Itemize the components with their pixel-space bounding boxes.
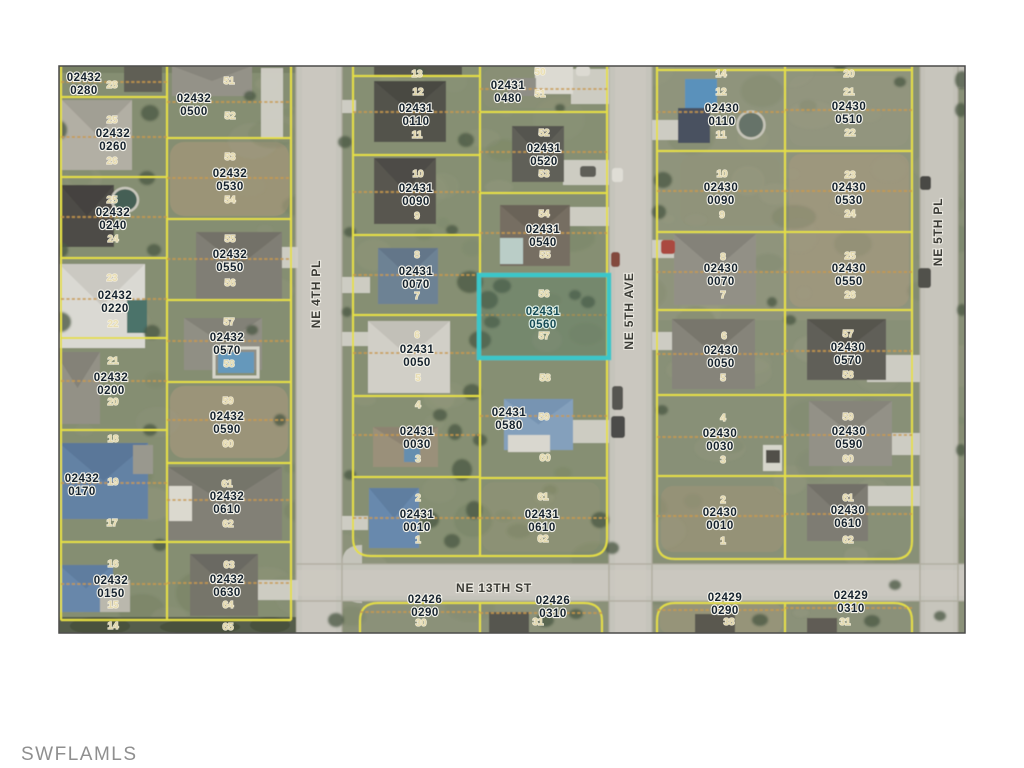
svg-text:0610: 0610 xyxy=(528,522,556,534)
svg-text:0550: 0550 xyxy=(835,276,863,288)
svg-text:0110: 0110 xyxy=(403,116,430,128)
svg-text:02431: 02431 xyxy=(492,407,527,419)
svg-text:0570: 0570 xyxy=(213,345,241,357)
svg-text:02431: 02431 xyxy=(400,426,435,438)
svg-text:02430: 02430 xyxy=(704,182,738,194)
svg-text:58: 58 xyxy=(223,359,235,370)
svg-text:02430: 02430 xyxy=(703,507,737,519)
svg-text:59: 59 xyxy=(842,412,854,423)
svg-text:02430: 02430 xyxy=(703,428,737,440)
svg-text:25: 25 xyxy=(106,195,118,206)
svg-text:0550: 0550 xyxy=(216,262,244,274)
svg-text:02430: 02430 xyxy=(704,263,738,275)
svg-text:4: 4 xyxy=(720,413,726,424)
svg-text:14: 14 xyxy=(715,69,727,80)
svg-text:30: 30 xyxy=(415,618,427,629)
svg-text:02432: 02432 xyxy=(98,290,132,302)
svg-text:25: 25 xyxy=(106,115,118,126)
svg-text:0030: 0030 xyxy=(403,439,431,451)
svg-text:0480: 0480 xyxy=(494,93,522,105)
svg-text:02430: 02430 xyxy=(832,101,866,113)
svg-text:23: 23 xyxy=(844,170,856,181)
svg-text:26: 26 xyxy=(844,290,856,301)
svg-text:11: 11 xyxy=(716,130,727,141)
svg-text:58: 58 xyxy=(842,370,854,381)
svg-text:0070: 0070 xyxy=(707,276,735,288)
svg-text:02432: 02432 xyxy=(177,93,211,105)
svg-text:1: 1 xyxy=(720,536,726,547)
svg-text:23: 23 xyxy=(106,273,118,284)
svg-text:NE 4TH PL: NE 4TH PL xyxy=(309,260,323,329)
svg-text:0500: 0500 xyxy=(180,106,208,118)
svg-text:5: 5 xyxy=(720,373,726,384)
svg-text:0110: 0110 xyxy=(709,116,736,128)
svg-text:02432: 02432 xyxy=(210,332,244,344)
svg-text:SWFLAMLS: SWFLAMLS xyxy=(21,744,138,765)
svg-text:7: 7 xyxy=(720,290,726,301)
svg-text:0610: 0610 xyxy=(213,504,241,516)
svg-text:0570: 0570 xyxy=(834,355,862,367)
svg-text:0070: 0070 xyxy=(402,279,430,291)
svg-text:53: 53 xyxy=(224,152,236,163)
svg-text:02430: 02430 xyxy=(705,103,739,115)
svg-text:02432: 02432 xyxy=(96,207,130,219)
svg-text:02431: 02431 xyxy=(399,103,434,115)
svg-text:12: 12 xyxy=(412,87,424,98)
svg-text:NE 5TH PL: NE 5TH PL xyxy=(931,198,945,267)
svg-text:02426: 02426 xyxy=(408,594,442,606)
svg-text:2: 2 xyxy=(720,495,726,506)
svg-text:7: 7 xyxy=(414,291,420,302)
svg-text:14: 14 xyxy=(107,621,119,632)
svg-text:8: 8 xyxy=(414,250,420,261)
svg-text:56: 56 xyxy=(224,278,236,289)
svg-text:0580: 0580 xyxy=(495,420,523,432)
svg-text:02430: 02430 xyxy=(831,342,865,354)
svg-text:62: 62 xyxy=(842,535,854,546)
svg-text:0290: 0290 xyxy=(711,605,739,617)
svg-text:62: 62 xyxy=(222,519,234,530)
svg-text:0590: 0590 xyxy=(213,424,241,436)
svg-text:NE 5TH AVE: NE 5TH AVE xyxy=(622,272,636,349)
svg-text:02430: 02430 xyxy=(832,426,866,438)
svg-text:52: 52 xyxy=(224,111,236,122)
svg-text:20: 20 xyxy=(107,397,119,408)
svg-text:02432: 02432 xyxy=(213,168,247,180)
svg-text:63: 63 xyxy=(223,560,235,571)
svg-text:26: 26 xyxy=(106,156,118,167)
svg-text:02431: 02431 xyxy=(400,344,435,356)
svg-text:52: 52 xyxy=(538,128,550,139)
svg-text:0280: 0280 xyxy=(70,85,98,97)
svg-text:28: 28 xyxy=(106,80,118,91)
svg-text:0090: 0090 xyxy=(402,196,430,208)
svg-text:51: 51 xyxy=(534,89,546,100)
svg-text:62: 62 xyxy=(537,534,549,545)
svg-text:02429: 02429 xyxy=(834,590,868,602)
svg-text:NE 13TH ST: NE 13TH ST xyxy=(456,581,532,595)
svg-text:65: 65 xyxy=(222,622,234,633)
svg-text:24: 24 xyxy=(107,234,119,245)
svg-text:3: 3 xyxy=(415,454,421,465)
svg-text:0090: 0090 xyxy=(707,195,735,207)
svg-text:02432: 02432 xyxy=(67,72,101,84)
svg-text:02431: 02431 xyxy=(526,306,561,318)
svg-text:60: 60 xyxy=(539,453,551,464)
svg-text:15: 15 xyxy=(107,600,119,611)
svg-text:60: 60 xyxy=(222,439,234,450)
svg-text:24: 24 xyxy=(844,209,856,220)
svg-text:57: 57 xyxy=(538,331,550,342)
svg-text:31: 31 xyxy=(532,617,544,628)
svg-text:59: 59 xyxy=(222,396,234,407)
svg-text:60: 60 xyxy=(842,454,854,465)
svg-text:22: 22 xyxy=(844,128,856,139)
svg-text:02430: 02430 xyxy=(832,182,866,194)
svg-text:3: 3 xyxy=(720,455,726,466)
svg-text:61: 61 xyxy=(221,479,233,490)
svg-text:0530: 0530 xyxy=(835,195,863,207)
svg-text:11: 11 xyxy=(412,130,423,141)
svg-text:02431: 02431 xyxy=(400,509,435,521)
svg-text:10: 10 xyxy=(412,169,424,180)
svg-text:0540: 0540 xyxy=(529,237,557,249)
svg-text:2: 2 xyxy=(415,493,421,504)
svg-text:55: 55 xyxy=(224,234,236,245)
svg-text:02431: 02431 xyxy=(525,509,560,521)
svg-text:64: 64 xyxy=(222,600,234,611)
svg-text:0030: 0030 xyxy=(706,441,734,453)
svg-text:18: 18 xyxy=(107,434,119,445)
svg-text:02432: 02432 xyxy=(94,372,128,384)
svg-text:61: 61 xyxy=(842,493,854,504)
svg-text:0010: 0010 xyxy=(403,522,431,534)
svg-text:0050: 0050 xyxy=(707,358,735,370)
svg-text:4: 4 xyxy=(415,400,421,411)
svg-text:02431: 02431 xyxy=(399,183,434,195)
svg-text:19: 19 xyxy=(107,477,119,488)
svg-text:22: 22 xyxy=(107,319,119,330)
svg-text:20: 20 xyxy=(843,69,855,80)
svg-text:0150: 0150 xyxy=(97,588,125,600)
svg-text:12: 12 xyxy=(715,87,727,98)
svg-text:0220: 0220 xyxy=(101,303,129,315)
svg-text:17: 17 xyxy=(106,518,118,529)
svg-text:54: 54 xyxy=(224,195,236,206)
svg-text:58: 58 xyxy=(539,373,551,384)
svg-text:02430: 02430 xyxy=(704,345,738,357)
svg-text:9: 9 xyxy=(414,211,420,222)
svg-text:61: 61 xyxy=(537,492,549,503)
svg-text:21: 21 xyxy=(843,87,855,98)
svg-text:02432: 02432 xyxy=(96,128,130,140)
svg-text:59: 59 xyxy=(538,412,550,423)
svg-text:56: 56 xyxy=(538,289,550,300)
svg-text:02426: 02426 xyxy=(536,595,570,607)
svg-text:53: 53 xyxy=(538,169,550,180)
svg-text:0630: 0630 xyxy=(213,587,241,599)
svg-text:13: 13 xyxy=(411,69,423,80)
svg-text:0310: 0310 xyxy=(837,603,865,615)
svg-text:0530: 0530 xyxy=(216,181,244,193)
svg-text:0170: 0170 xyxy=(68,486,96,498)
svg-text:0010: 0010 xyxy=(706,520,734,532)
svg-text:55: 55 xyxy=(539,250,551,261)
svg-text:1: 1 xyxy=(415,535,421,546)
svg-text:25: 25 xyxy=(844,251,856,262)
svg-text:6: 6 xyxy=(414,330,420,341)
svg-text:0260: 0260 xyxy=(99,141,127,153)
svg-text:02431: 02431 xyxy=(399,266,434,278)
svg-text:16: 16 xyxy=(107,559,119,570)
svg-text:57: 57 xyxy=(842,329,854,340)
svg-text:0520: 0520 xyxy=(530,156,558,168)
svg-text:21: 21 xyxy=(107,356,119,367)
svg-text:5: 5 xyxy=(415,373,421,384)
svg-text:54: 54 xyxy=(538,209,550,220)
svg-text:38: 38 xyxy=(723,617,735,628)
svg-text:6: 6 xyxy=(721,331,727,342)
svg-text:02431: 02431 xyxy=(491,80,526,92)
svg-text:9: 9 xyxy=(719,210,725,221)
svg-text:02432: 02432 xyxy=(210,574,244,586)
svg-text:31: 31 xyxy=(839,617,851,628)
svg-text:02430: 02430 xyxy=(831,505,865,517)
svg-text:02429: 02429 xyxy=(708,592,742,604)
svg-text:02432: 02432 xyxy=(94,575,128,587)
svg-text:50: 50 xyxy=(534,67,546,78)
svg-text:51: 51 xyxy=(223,76,235,87)
svg-text:0590: 0590 xyxy=(835,439,863,451)
svg-text:0510: 0510 xyxy=(835,114,863,126)
svg-text:02431: 02431 xyxy=(527,143,562,155)
svg-text:02432: 02432 xyxy=(210,411,244,423)
svg-text:10: 10 xyxy=(716,169,728,180)
svg-text:0240: 0240 xyxy=(99,220,127,232)
svg-text:0560: 0560 xyxy=(529,319,557,331)
svg-text:57: 57 xyxy=(223,317,235,328)
svg-text:0610: 0610 xyxy=(834,518,862,530)
svg-text:02431: 02431 xyxy=(526,224,561,236)
svg-text:02432: 02432 xyxy=(65,473,99,485)
svg-text:8: 8 xyxy=(720,252,726,263)
svg-text:0200: 0200 xyxy=(97,385,125,397)
svg-text:02432: 02432 xyxy=(213,249,247,261)
svg-text:0050: 0050 xyxy=(403,357,431,369)
svg-text:02432: 02432 xyxy=(210,491,244,503)
svg-text:02430: 02430 xyxy=(832,263,866,275)
